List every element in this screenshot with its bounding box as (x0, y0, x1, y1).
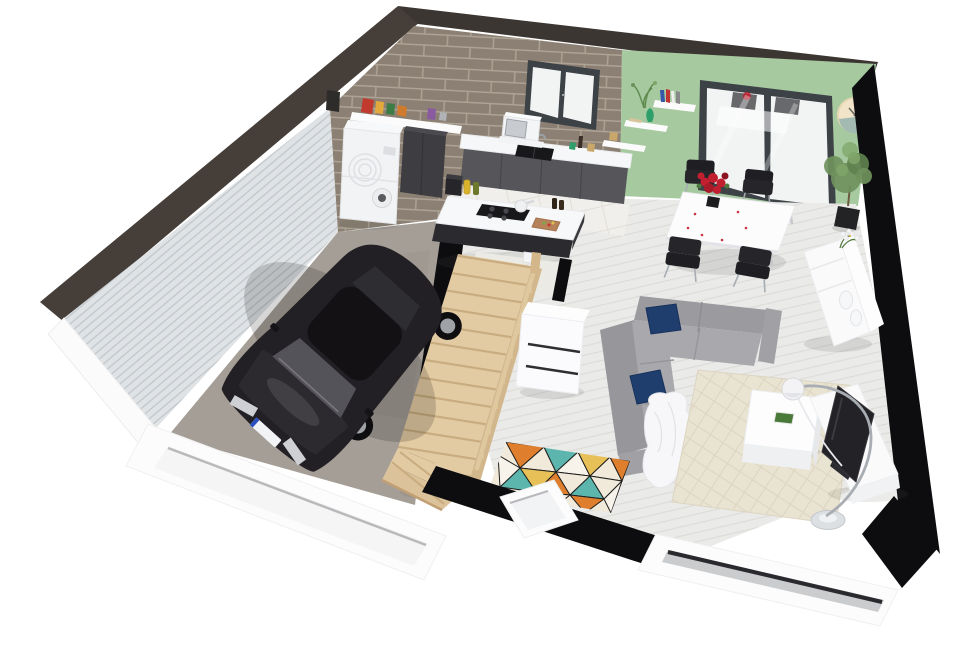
wine-bottle (552, 198, 557, 209)
cereal-box (361, 98, 374, 114)
books (660, 89, 680, 104)
coffee-machine (445, 178, 462, 196)
book (666, 89, 670, 103)
jar (587, 143, 595, 152)
navy-pillow (646, 304, 681, 334)
petal (841, 232, 845, 236)
oil-bottle (473, 182, 479, 195)
oil-bottle (464, 180, 470, 194)
vase (706, 196, 720, 208)
deco-box (609, 132, 618, 141)
food (548, 224, 551, 227)
leaf (725, 184, 730, 189)
petal (855, 236, 859, 240)
kitchen-window-pane-left (530, 67, 561, 118)
rose (713, 186, 721, 194)
petal (694, 213, 697, 216)
cereal-box (386, 103, 395, 115)
petal (701, 234, 704, 237)
flower-center (849, 235, 851, 237)
petal (745, 227, 748, 230)
dryer-door-glass (378, 194, 386, 202)
burner (503, 208, 508, 213)
wine-bottle (559, 200, 564, 210)
deco-vase (851, 310, 862, 326)
deco-vase (840, 291, 853, 309)
magazine (774, 412, 794, 424)
storage-cabinet (516, 302, 590, 399)
cereal-box (375, 101, 384, 114)
leaf (631, 83, 635, 87)
burner (501, 215, 506, 220)
jar (427, 108, 436, 120)
cooking-pot (515, 200, 527, 212)
storage-front (516, 314, 584, 394)
foliage (856, 168, 872, 184)
floorplan-scene (0, 0, 960, 646)
petal (721, 239, 724, 242)
leaf (653, 81, 657, 85)
rose (698, 173, 705, 180)
petal (737, 211, 740, 214)
front-window-long (638, 534, 898, 626)
plant-pot (834, 206, 860, 230)
burner (487, 213, 492, 218)
cup (569, 142, 576, 150)
leaf (697, 184, 702, 189)
electrical-panel (326, 90, 340, 112)
book (676, 91, 680, 104)
microwave-door (505, 119, 527, 138)
food (543, 222, 546, 225)
food (552, 222, 555, 225)
rose (722, 173, 729, 180)
foliage-highlight (848, 152, 860, 164)
kitchen-window-pane-right (563, 72, 594, 124)
petal (847, 229, 851, 233)
cereal-box (397, 105, 407, 117)
jar (439, 112, 447, 121)
floorplan-3d-render (0, 0, 960, 646)
petal (844, 236, 848, 240)
petal (687, 227, 690, 230)
foliage-highlight (836, 164, 848, 176)
rose (704, 183, 714, 193)
rose (708, 173, 718, 183)
burner (489, 206, 494, 211)
